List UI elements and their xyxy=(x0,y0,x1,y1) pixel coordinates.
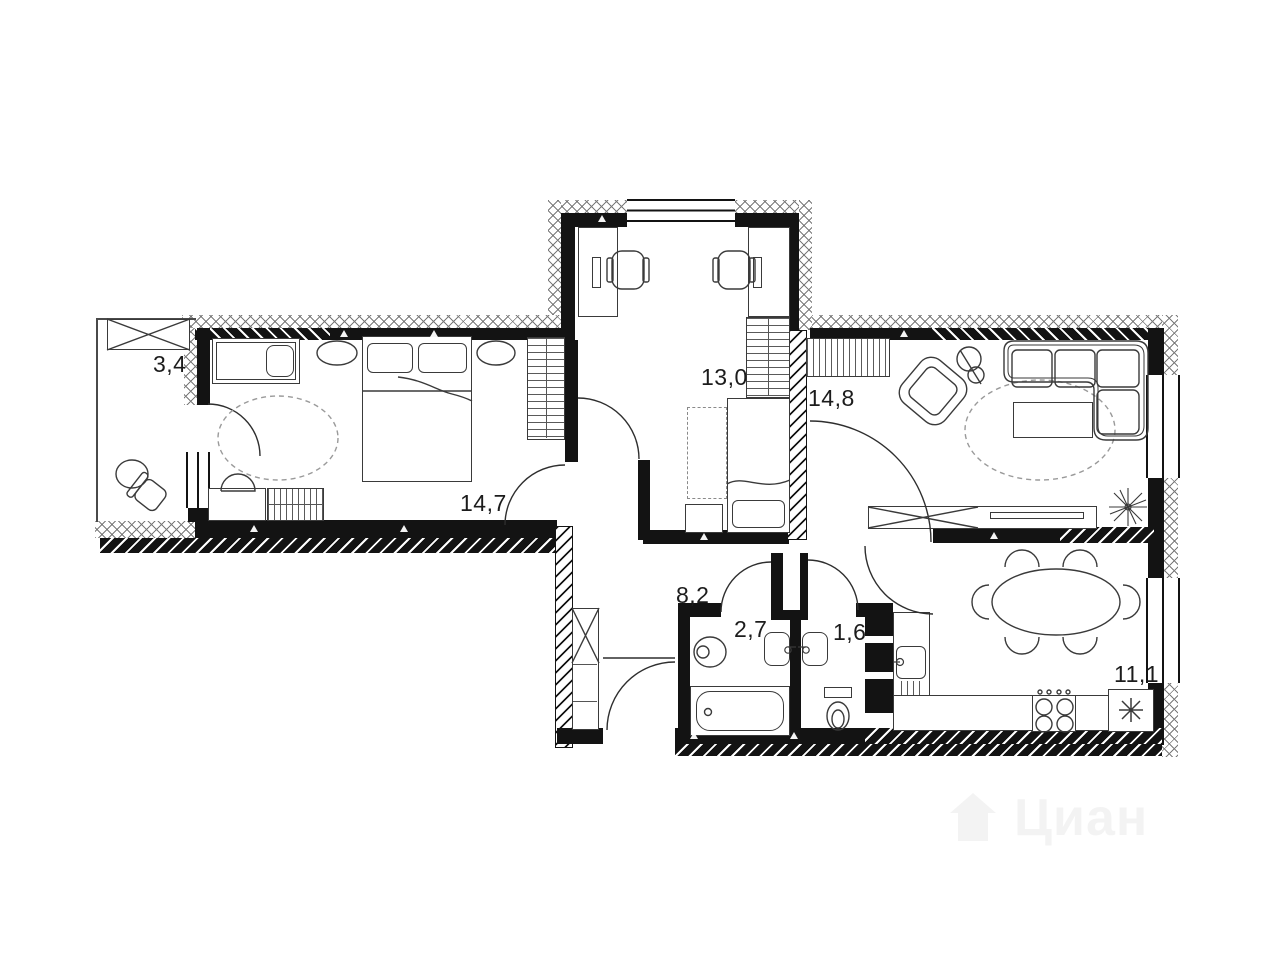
wall-segment xyxy=(678,603,690,747)
wall-segment xyxy=(548,200,561,330)
duct-shaft xyxy=(865,603,893,713)
hallway-cabinet xyxy=(572,608,599,730)
wall-segment xyxy=(790,618,801,738)
children-wardrobe xyxy=(746,317,790,398)
pedestal-sink xyxy=(694,637,726,667)
door-arc xyxy=(578,398,639,459)
room-label-kitchen: 11,1 xyxy=(1114,663,1159,686)
wall-segment xyxy=(735,213,799,227)
washbasin xyxy=(764,632,790,666)
double-bed-pillow xyxy=(367,343,413,373)
cabinet-shelf xyxy=(573,664,597,665)
bedroom-wardrobe xyxy=(527,337,565,440)
wall-segment xyxy=(565,340,578,462)
balcony-door-window xyxy=(186,452,210,508)
floor-plan: 3,4 14,7 13,0 14,8 8,2 2,7 1,6 11,1 Циан xyxy=(0,0,1280,962)
toilet-bowl xyxy=(827,702,849,730)
watermark: Циан xyxy=(944,788,1148,848)
watermark-text: Циан xyxy=(1014,788,1148,848)
loggia-storage-box xyxy=(107,319,190,350)
kitchen-counter xyxy=(893,695,1110,731)
door-arc xyxy=(505,465,565,525)
bedroom-desk xyxy=(208,488,266,521)
wall-segment xyxy=(100,538,565,553)
monitor xyxy=(592,257,601,288)
washbasin xyxy=(802,632,828,666)
nightstand xyxy=(685,504,723,533)
wall-segment xyxy=(933,529,1062,543)
door-arc xyxy=(721,562,771,612)
room-label-loggia: 3,4 xyxy=(153,353,186,376)
children-bed-pillow xyxy=(732,500,785,528)
wardrobe-divider xyxy=(546,338,547,438)
wall-segment xyxy=(675,744,1162,756)
wall-segment xyxy=(799,200,812,330)
wall-segment xyxy=(555,526,573,748)
coffee-table xyxy=(1013,402,1093,438)
floor-lamp xyxy=(957,347,984,384)
single-bed-pillow xyxy=(266,345,294,377)
room-label-hallway: 8,2 xyxy=(676,584,709,607)
wall-segment xyxy=(561,213,575,340)
wall-segment xyxy=(787,330,807,540)
double-bed-pillow xyxy=(418,343,467,373)
wall-segment xyxy=(1148,328,1164,375)
wall-segment xyxy=(771,553,783,617)
room-label-living-room: 14,8 xyxy=(808,387,855,410)
living-wardrobe xyxy=(806,338,890,377)
toilet-tank xyxy=(824,687,852,698)
cabinet-shelf xyxy=(573,701,597,702)
appliance-box xyxy=(1108,689,1154,732)
door-arc xyxy=(607,662,675,730)
room-label-children-room: 13,0 xyxy=(701,366,748,389)
wall-segment xyxy=(812,315,1162,328)
room-label-bedroom: 14,7 xyxy=(460,492,507,515)
wall-segment xyxy=(557,728,603,744)
clearance-ellipses xyxy=(218,380,1115,480)
tv xyxy=(990,512,1084,519)
door-arc xyxy=(208,404,260,456)
monitor xyxy=(753,257,762,288)
bedroom-dresser xyxy=(267,488,324,521)
wall-segment xyxy=(800,553,808,617)
wardrobe-divider xyxy=(768,318,769,396)
shaft-gap xyxy=(865,636,893,643)
shaft-gap xyxy=(865,672,893,679)
wall-segment xyxy=(197,328,210,405)
wall-segment xyxy=(1060,527,1154,543)
wall-segment xyxy=(638,460,650,540)
room-label-bathroom: 2,7 xyxy=(734,618,767,641)
planned-furniture-outline xyxy=(687,407,727,499)
sink-drainboard xyxy=(901,681,923,695)
door-arc xyxy=(808,560,858,610)
dining-set xyxy=(972,550,1140,654)
window xyxy=(627,199,735,222)
plant xyxy=(1109,488,1147,526)
wall-segment xyxy=(561,213,627,227)
wall-segment xyxy=(95,521,199,538)
wall-segment xyxy=(932,328,1150,340)
armchair xyxy=(894,352,973,431)
wall-segment xyxy=(195,520,557,538)
bathtub-inner xyxy=(696,691,784,731)
wall-segment xyxy=(182,315,562,328)
stove xyxy=(1032,695,1076,732)
watermark-logo-icon xyxy=(944,789,1002,847)
dresser-divider xyxy=(268,504,322,505)
window xyxy=(1146,375,1180,478)
kitchen-sink xyxy=(896,646,926,679)
room-label-toilet: 1,6 xyxy=(833,621,866,644)
